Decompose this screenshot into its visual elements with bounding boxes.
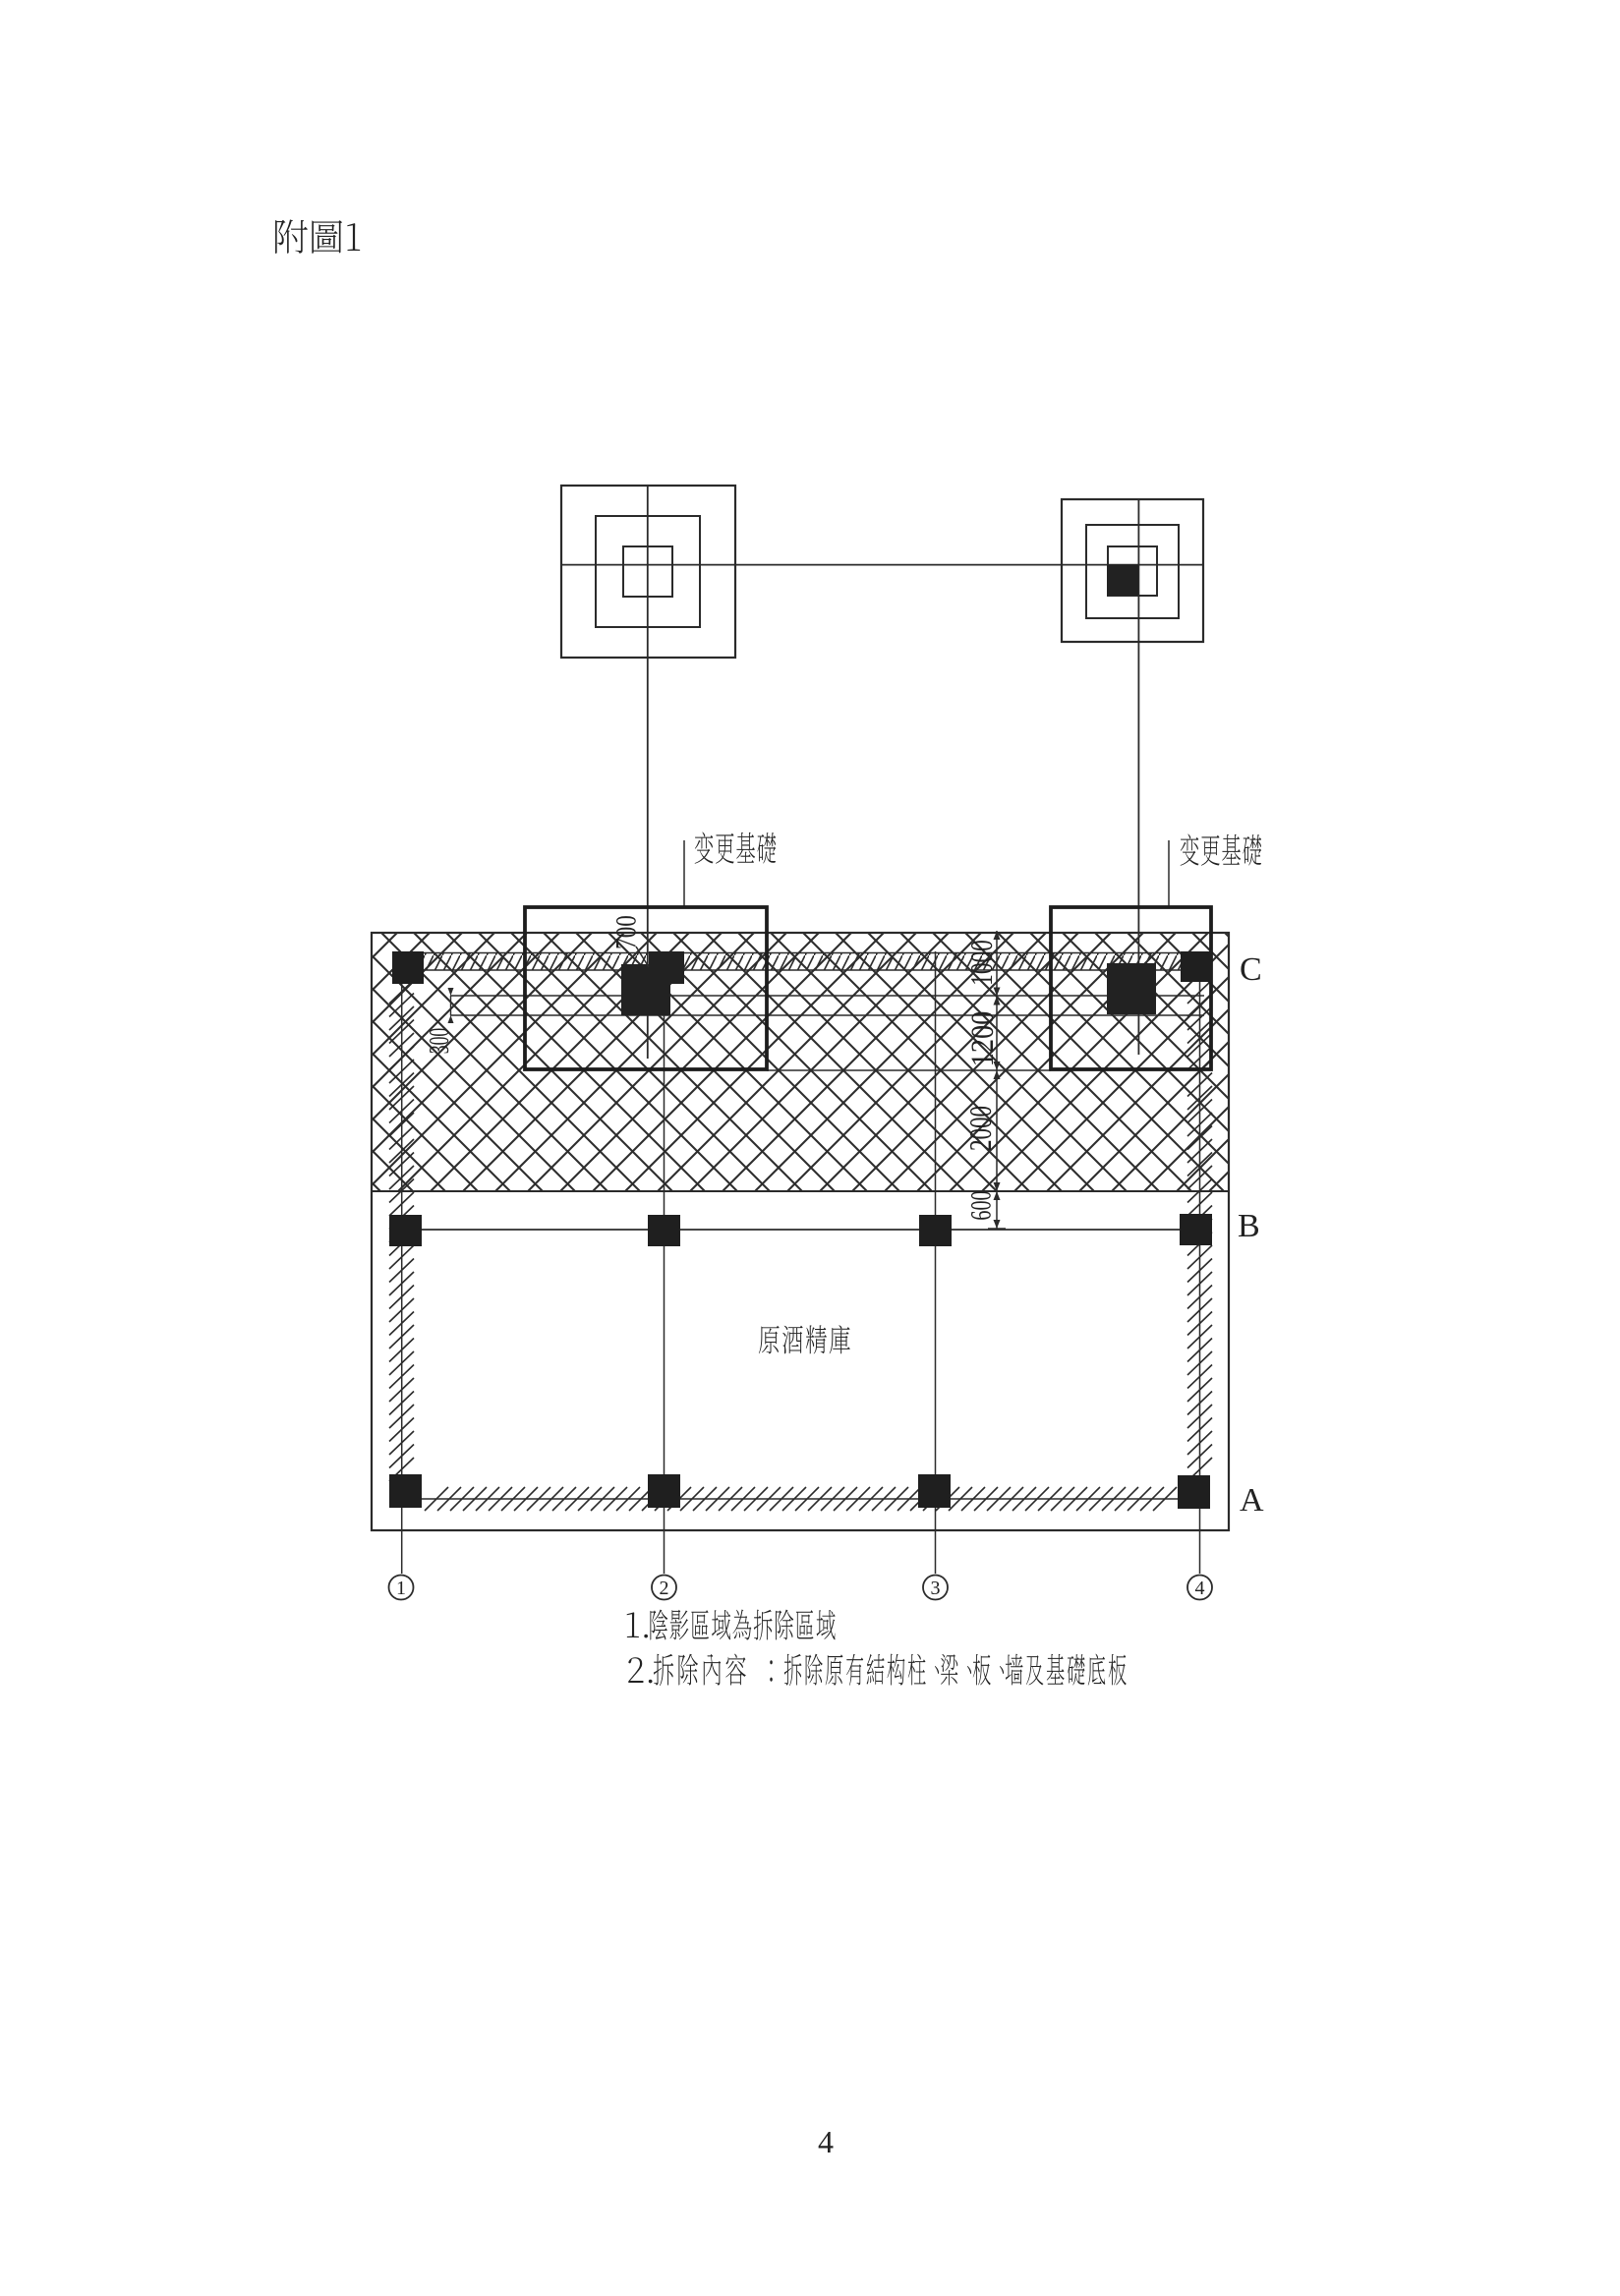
svg-text:4: 4	[1195, 1578, 1205, 1599]
svg-text:300: 300	[425, 1028, 455, 1054]
svg-text:A: A	[1240, 1482, 1264, 1519]
svg-text:600: 600	[963, 1190, 997, 1220]
svg-text:C: C	[1240, 951, 1262, 988]
svg-text:B: B	[1238, 1208, 1260, 1244]
svg-text:2: 2	[660, 1578, 669, 1599]
svg-text:700: 700	[609, 915, 643, 949]
svg-text:1200: 1200	[964, 1011, 1000, 1067]
svg-text:1000: 1000	[965, 940, 1000, 986]
svg-text:2000: 2000	[964, 1106, 1000, 1151]
svg-text:1: 1	[396, 1578, 406, 1599]
svg-text:3: 3	[931, 1578, 941, 1599]
svg-text:4: 4	[818, 2124, 834, 2159]
